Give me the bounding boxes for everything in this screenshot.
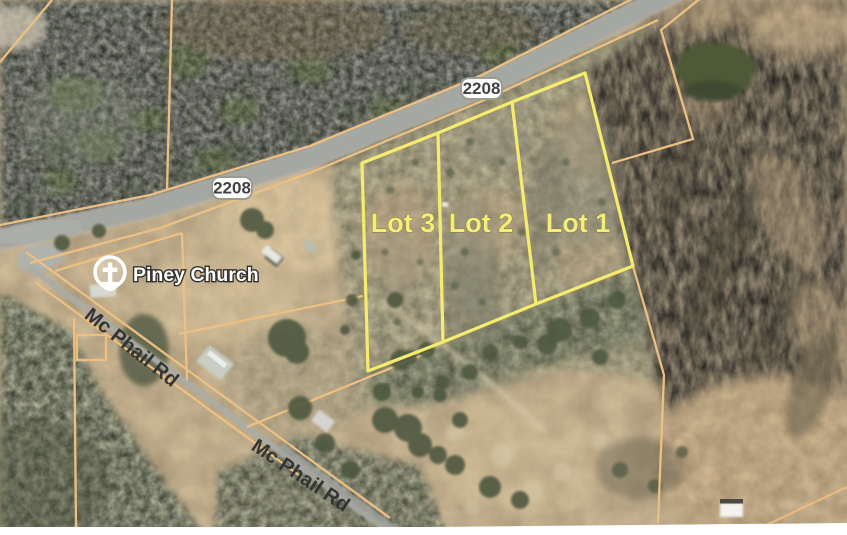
svg-text:2208: 2208 bbox=[213, 179, 251, 198]
svg-text:Piney Church: Piney Church bbox=[133, 264, 259, 286]
svg-text:Lot 3: Lot 3 bbox=[371, 208, 436, 238]
svg-text:2208: 2208 bbox=[463, 79, 501, 98]
svg-text:Lot 2: Lot 2 bbox=[449, 208, 514, 238]
svg-text:Lot 1: Lot 1 bbox=[546, 208, 611, 238]
